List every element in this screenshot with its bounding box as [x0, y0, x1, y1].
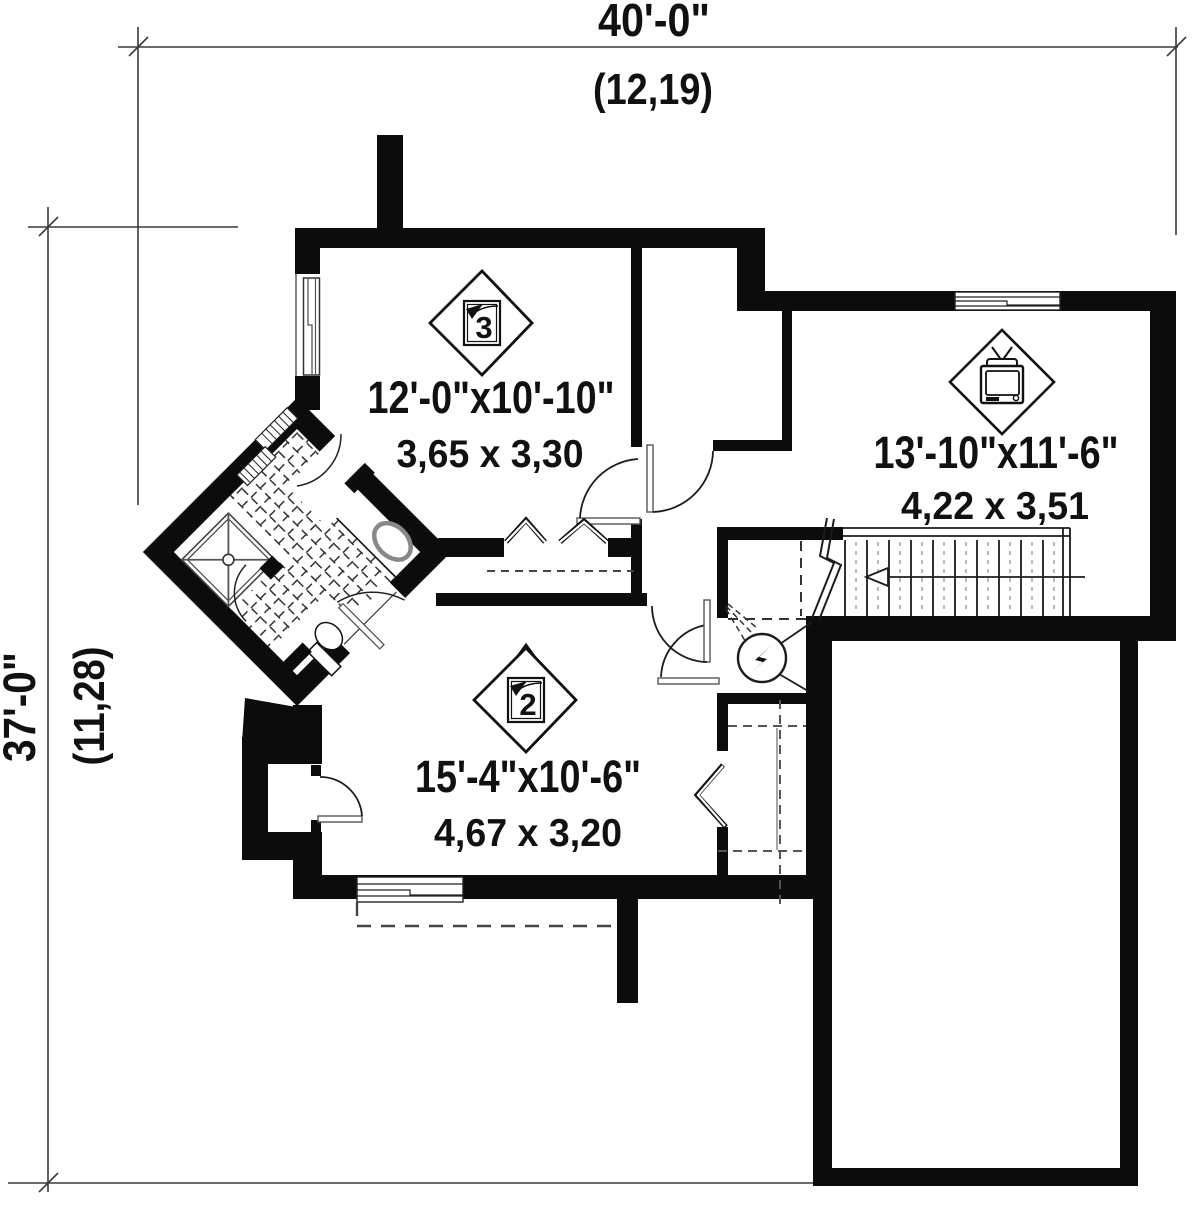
svg-text:12'-0"x10'-10": 12'-0"x10'-10"	[368, 372, 615, 423]
svg-text:4,67 x 3,20: 4,67 x 3,20	[434, 812, 622, 855]
svg-text:(12,19): (12,19)	[593, 65, 713, 114]
svg-text:13'-10"x11'-6": 13'-10"x11'-6"	[874, 427, 1119, 478]
svg-text:(11,28): (11,28)	[65, 647, 114, 766]
svg-text:3: 3	[475, 310, 492, 345]
svg-text:3,65 x 3,30: 3,65 x 3,30	[397, 433, 584, 476]
svg-text:2: 2	[519, 687, 536, 722]
svg-text:37'-0": 37'-0"	[0, 652, 45, 762]
svg-text:40'-0": 40'-0"	[598, 0, 710, 46]
svg-text:4,22 x 3,51: 4,22 x 3,51	[901, 485, 1089, 528]
svg-text:15'-4"x10'-6": 15'-4"x10'-6"	[415, 751, 641, 802]
